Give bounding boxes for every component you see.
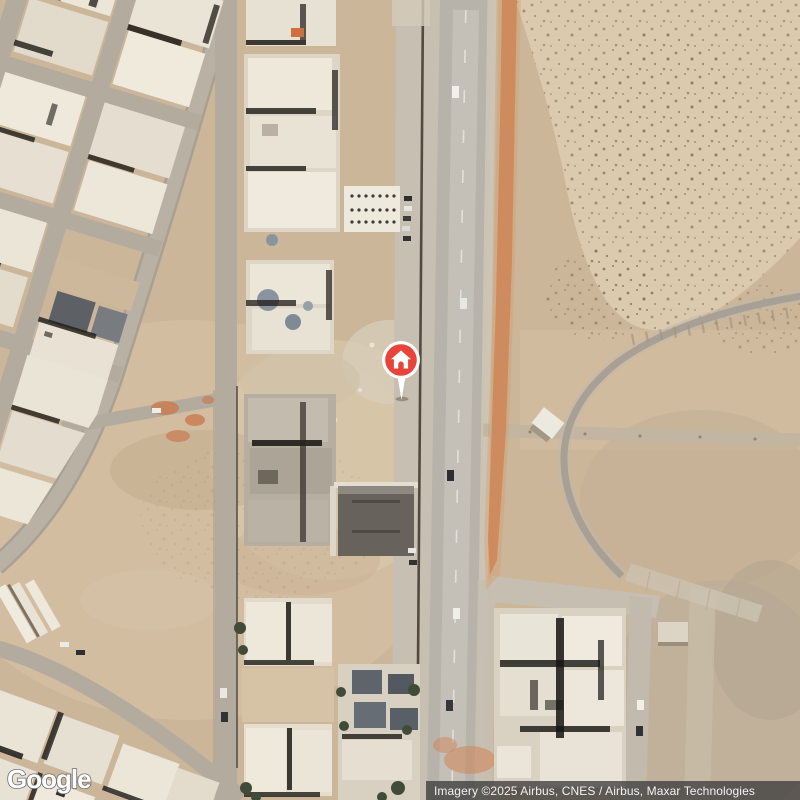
google-logo[interactable]: Google bbox=[7, 764, 91, 794]
attribution-text: Imagery ©2025 Airbus, CNES / Airbus, Max… bbox=[434, 784, 755, 798]
satellite-imagery: Google bbox=[0, 0, 800, 800]
attribution-bar: Imagery ©2025 Airbus, CNES / Airbus, Max… bbox=[426, 781, 800, 800]
map-canvas[interactable]: Google Imagery ©2025 Airbus, CNES / Airb… bbox=[0, 0, 800, 800]
pin-shadow bbox=[396, 397, 409, 401]
